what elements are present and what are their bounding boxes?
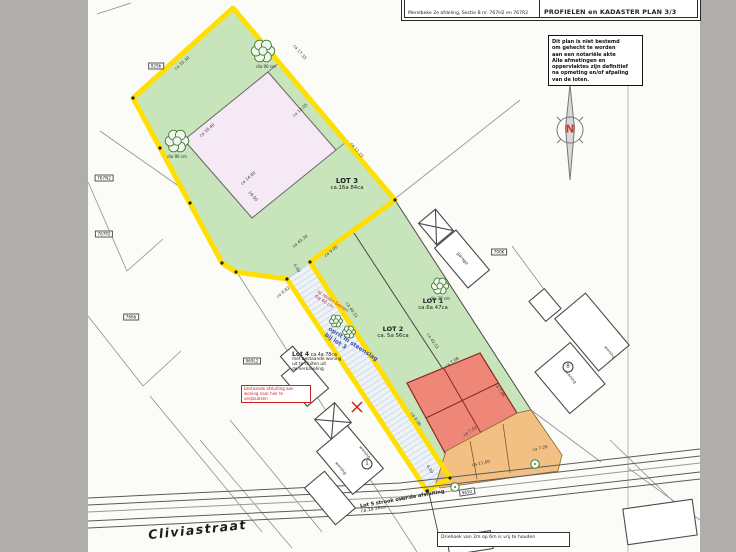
dimension-label: ca 16.40 xyxy=(198,122,215,138)
building-label: woning xyxy=(603,345,617,360)
parcel-number-label: 767N2 xyxy=(95,175,114,182)
dimension-label: ca 17.35 xyxy=(292,43,308,60)
lot2-label: LOT 2 ca. 5a 56ca xyxy=(377,325,408,339)
dimension-label: ca 7.06 xyxy=(444,356,460,369)
dimension-label: 4.00 xyxy=(425,464,434,475)
lot3-area: ca.16a 84ca xyxy=(331,185,364,191)
fence-relocation-note: bestaande afsluiting aanwoning naar hier… xyxy=(241,385,311,403)
dimension-label: ca 7.06 xyxy=(494,382,507,398)
title-block-plan-cell: NIEUWE TOESTAND PLAN 2/3 PROFIELEN en KA… xyxy=(540,0,697,17)
text-overlay: Kadaster: Merelbeke 2e afdeling, Sectie … xyxy=(0,0,736,552)
plan-title: PROFIELEN en KADASTER PLAN 3/3 xyxy=(544,8,693,16)
parcel-number-label: 766b xyxy=(123,314,139,321)
lot2-area: ca. 5a 56ca xyxy=(377,333,408,339)
dimension-label: 4.00 xyxy=(292,263,301,274)
lot1-area: ca.6a 47ca xyxy=(418,305,448,311)
tree-diameter-label: dia 90 cm xyxy=(167,154,187,159)
north-letter: N xyxy=(565,123,574,136)
dimension-label: ca 7.02 xyxy=(462,425,478,438)
fence-note-line: verplaatsen xyxy=(244,397,308,402)
circled-number: 8 xyxy=(563,362,574,373)
dimension-label: ca 33.30 xyxy=(173,55,190,71)
trees-to-remove-annotation: te rooien bomen dia 60 cm xyxy=(313,290,349,318)
street-name: Cliviastraat xyxy=(147,517,247,542)
note-line: na opmeting en/of afpaling xyxy=(552,70,640,76)
parcel-number-label: 767P2 xyxy=(95,231,113,238)
building-label: woning xyxy=(334,461,348,476)
plan-note-box: Dit plan is niet bestemdom gehecht te wo… xyxy=(548,35,643,86)
scanned-cadastral-plan: Kadaster: Merelbeke 2e afdeling, Sectie … xyxy=(0,0,736,552)
dimension-label: ca 11.15 xyxy=(349,141,365,158)
title-block-kadaster-cell: Kadaster: Merelbeke 2e afdeling, Sectie … xyxy=(405,0,540,17)
parcel-number-label: 9692 xyxy=(459,487,476,496)
lot4-label: Lot 4 ca.4a 78ca met bestaande woninguit… xyxy=(292,351,341,373)
building-label: woning xyxy=(358,445,372,460)
dimension-label: ca 43.51 xyxy=(426,332,440,350)
tree-diameter-label: dia 90 cm xyxy=(256,64,276,69)
lot4-note: met bestaande woninguit te sluiten uitde… xyxy=(292,358,341,373)
dimension-label: 19.00 xyxy=(247,190,259,202)
dimension-label: ca 9.00 xyxy=(410,411,423,427)
kadaster-value: Merelbeke 2e afdeling, Sectie B nr. 767H… xyxy=(408,11,536,16)
lot4-note-line: de verkaveling xyxy=(292,368,341,373)
lot3-label: LOT 3 ca.16a 84ca xyxy=(331,177,364,191)
sight-triangle-note: Driehoek van 2m op 6m is vrij te houden xyxy=(437,532,570,547)
garage-label: garage xyxy=(455,251,469,266)
dimension-label: ca 13.05 xyxy=(291,102,308,118)
title-block: Kadaster: Merelbeke 2e afdeling, Sectie … xyxy=(404,0,698,18)
parcel-number-label: 790K xyxy=(491,249,507,256)
lot5-label: Lot 5 strook over de afsluiting ca.1a 30… xyxy=(360,489,446,515)
dimension-label: ca 6.82 xyxy=(275,285,290,299)
dimension-label: ca 9.00 xyxy=(323,244,338,258)
lot2-name: LOT 2 xyxy=(377,325,408,333)
note-line: van de loten. xyxy=(552,77,640,83)
lot3-name: LOT 3 xyxy=(331,177,364,185)
tree-diameter-label: dia 30 cm xyxy=(430,296,450,301)
dimension-label: ca 40.36 xyxy=(291,233,308,248)
parcel-number-label: 969L2 xyxy=(243,358,261,365)
parcel-number-label: 929b xyxy=(148,63,164,70)
dimension-label: ca 14.80 xyxy=(239,170,256,186)
circled-number: 1 xyxy=(362,459,373,470)
dimension-label: ca 11.60 xyxy=(472,459,491,468)
dimension-label: ca 7.26 xyxy=(532,444,548,452)
